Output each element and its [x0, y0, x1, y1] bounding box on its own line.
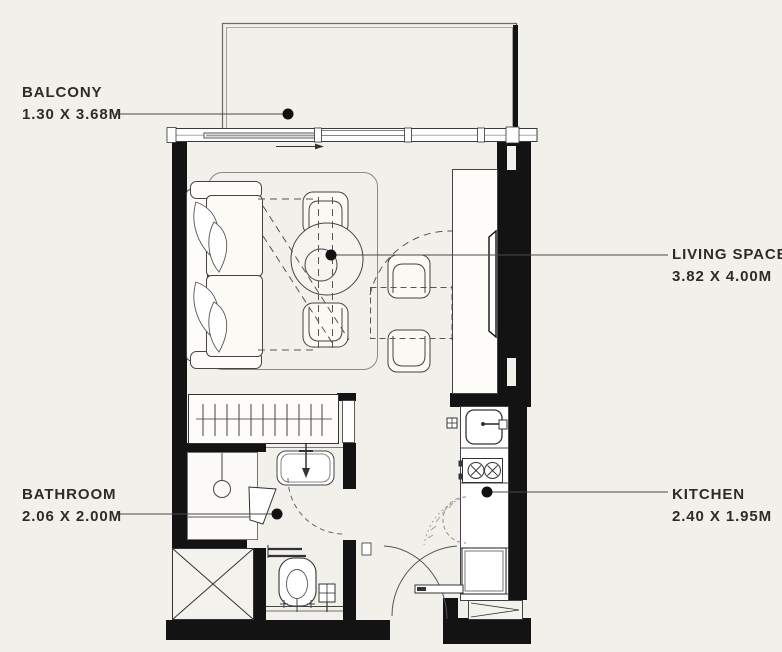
- kitchen-dot: [482, 487, 493, 498]
- washbasin-icon: [277, 444, 334, 485]
- dining-chair-icon: [388, 255, 430, 372]
- sliding-balcony-door-icon: [167, 127, 537, 149]
- coffee-table-icon: [291, 223, 363, 295]
- room-name: BATHROOM: [22, 484, 122, 506]
- balcony-label: BALCONY 1.30 X 3.68M: [22, 82, 122, 126]
- floor-drain-icon: [319, 584, 335, 612]
- room-dimensions: 3.82 X 4.00M: [672, 266, 782, 288]
- room-name: LIVING SPACE: [672, 244, 782, 266]
- living-space-label: LIVING SPACE 3.82 X 4.00M: [672, 244, 782, 288]
- room-dimensions: 2.40 X 1.95M: [672, 506, 772, 528]
- living-space-dot: [326, 250, 337, 261]
- toilet-icon: [268, 545, 316, 612]
- tv-icon: [489, 231, 496, 337]
- switch-icon: [447, 418, 457, 428]
- bathroom-dot: [272, 509, 283, 520]
- room-name: BALCONY: [22, 82, 122, 104]
- room-name: KITCHEN: [672, 484, 772, 506]
- room-dimensions: 2.06 X 2.00M: [22, 506, 122, 528]
- balcony-dot: [283, 109, 294, 120]
- service-shaft-icon: [173, 549, 254, 620]
- shaft-recess-icon: [469, 601, 523, 620]
- sofa-icon: [187, 182, 263, 369]
- shower-icon: [188, 453, 277, 540]
- refrigerator-icon: [462, 548, 506, 594]
- tv-console-icon: [453, 170, 498, 394]
- room-dimensions: 1.30 X 3.68M: [22, 104, 122, 126]
- floor-plan: BALCONY 1.30 X 3.68M LIVING SPACE 3.82 X…: [0, 0, 782, 652]
- kitchen-sink-icon: [466, 410, 507, 444]
- bathroom-label: BATHROOM 2.06 X 2.00M: [22, 484, 122, 528]
- wardrobe-icon: [189, 395, 339, 444]
- kitchen-label: KITCHEN 2.40 X 1.95M: [672, 484, 772, 528]
- balcony-outline: [223, 24, 519, 129]
